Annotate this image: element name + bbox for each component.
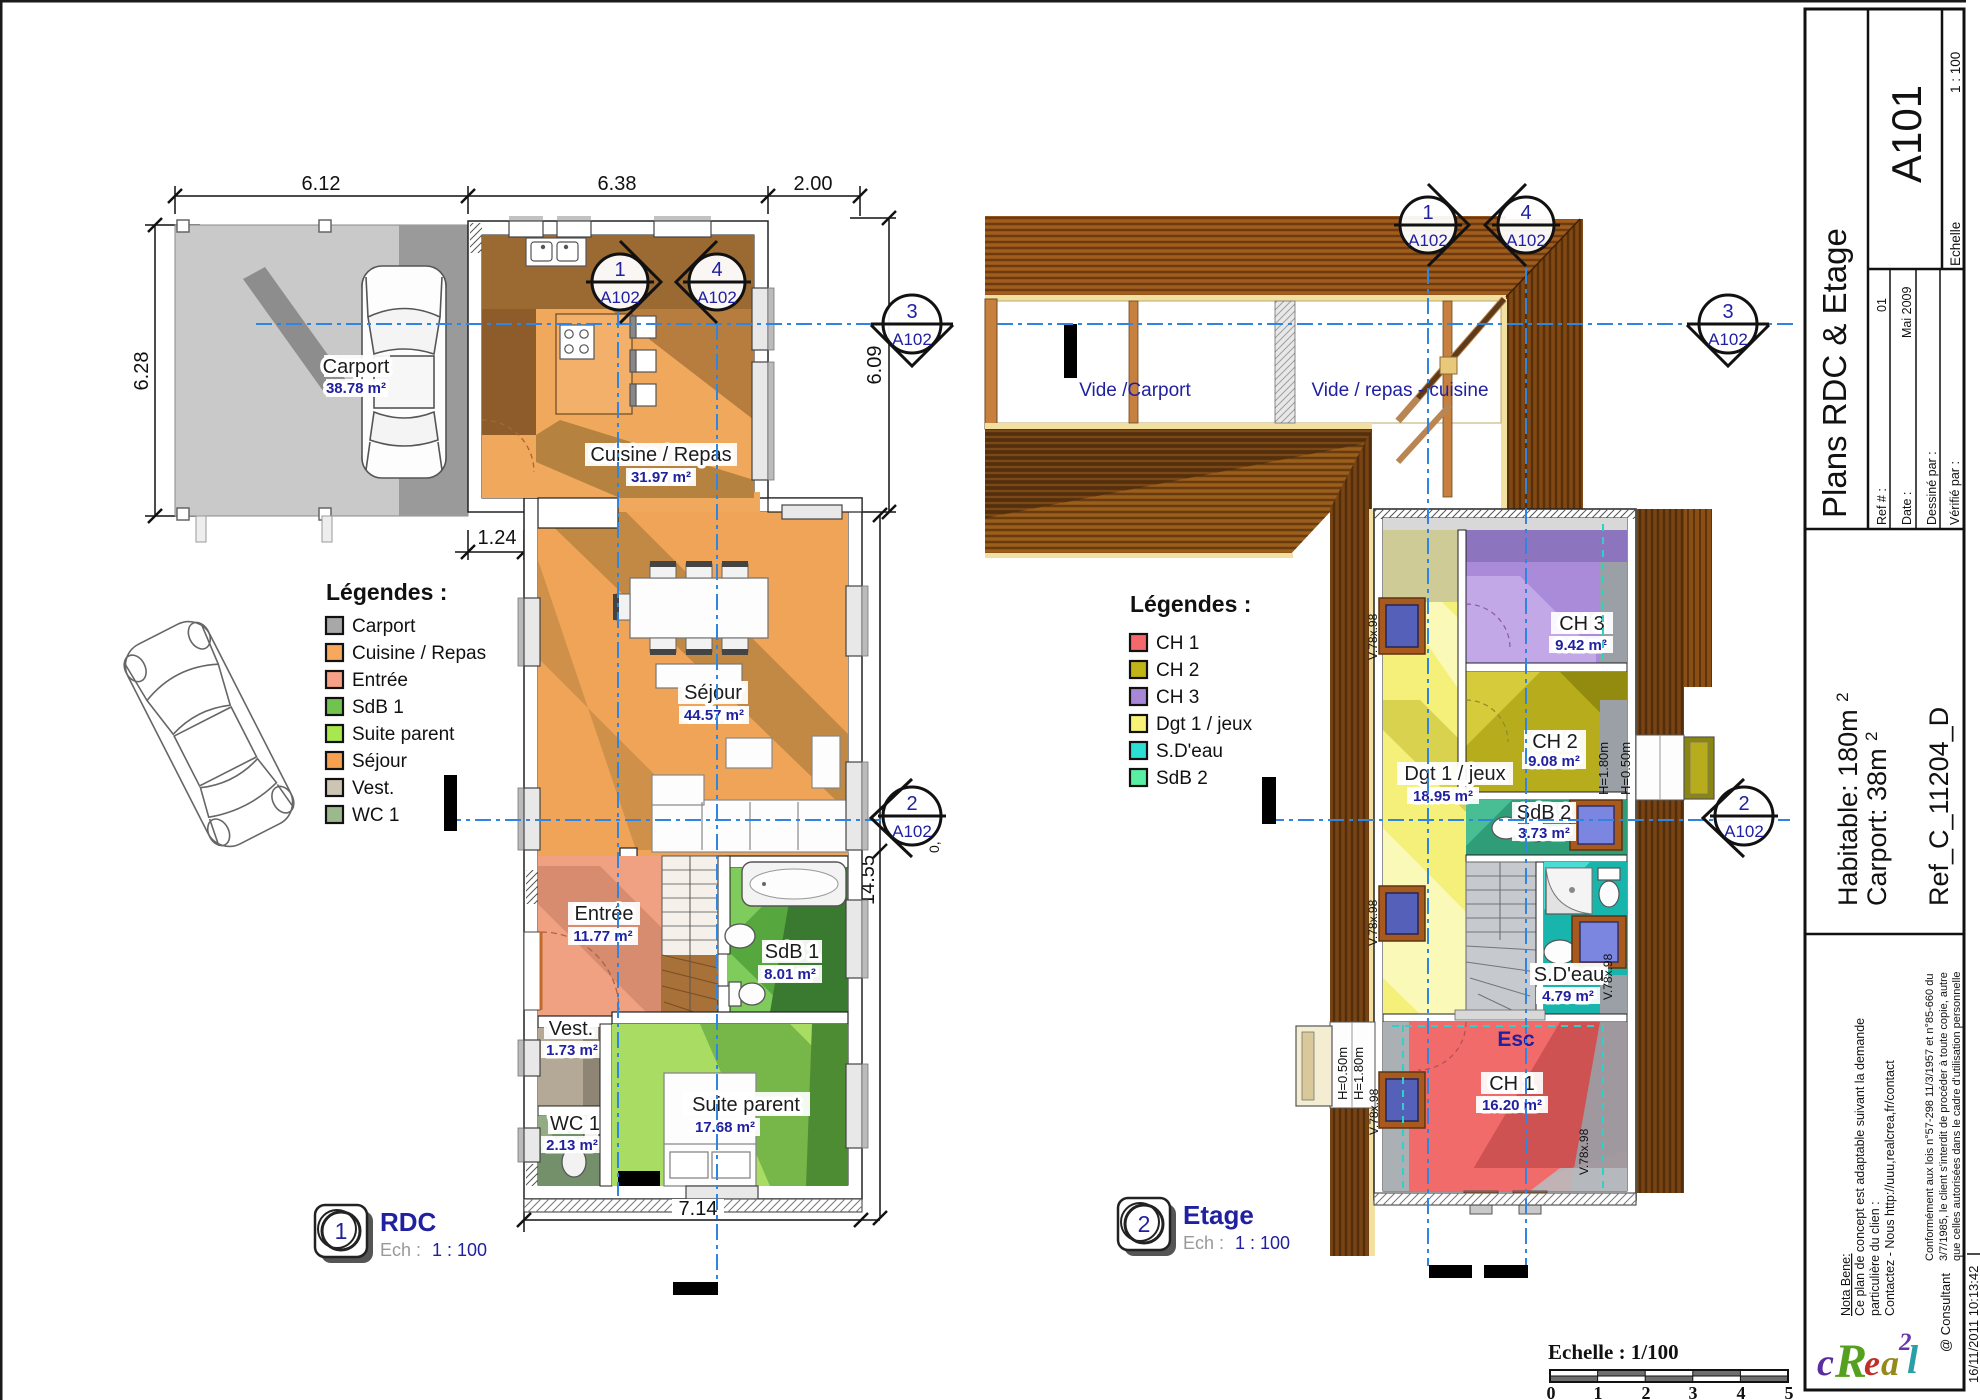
svg-text:CH 3: CH 3 [1156, 687, 1199, 708]
svg-text:Carport: Carport [323, 356, 390, 378]
svg-text:Plans RDC & Etage: Plans RDC & Etage [1816, 228, 1853, 518]
svg-text:Dessiné par :: Dessiné par : [1925, 451, 1939, 525]
svg-text:R: R [1834, 1335, 1867, 1388]
svg-text:Dgt 1 / jeux: Dgt 1 / jeux [1156, 714, 1253, 735]
svg-text:S.D'eau: S.D'eau [1156, 741, 1223, 762]
svg-text:16/11/2011 10:13:42: 16/11/2011 10:13:42 [1966, 1266, 1980, 1383]
svg-text:Date :: Date : [1900, 492, 1914, 525]
svg-text:1: 1 [335, 1218, 348, 1244]
svg-text:Légendes :: Légendes : [1130, 591, 1251, 617]
svg-text:2: 2 [906, 793, 917, 815]
svg-text:3: 3 [1689, 1383, 1698, 1400]
svg-text:Séjour: Séjour [684, 682, 742, 704]
svg-text:3: 3 [906, 301, 917, 323]
svg-text:WC 1: WC 1 [352, 805, 400, 826]
svg-text:3/7/1985, le client s'interdit: 3/7/1985, le client s'interdit de procéd… [1938, 972, 1950, 1261]
svg-text:Echelle: Echelle [1948, 222, 1963, 266]
svg-text:c: c [1817, 1342, 1834, 1384]
svg-text:A102: A102 [1708, 330, 1748, 349]
svg-text:Ech :: Ech : [380, 1240, 421, 1260]
svg-text:1: 1 [614, 259, 625, 281]
svg-text:S.D'eau: S.D'eau [1534, 964, 1605, 986]
svg-text:H=0.50m: H=0.50m [1335, 1047, 1350, 1100]
svg-text:Cuisine / Repas: Cuisine / Repas [352, 643, 486, 664]
svg-text:V.78x.98: V.78x.98 [1601, 953, 1615, 1000]
svg-text:0,: 0, [926, 841, 942, 853]
svg-text:5: 5 [1785, 1383, 1794, 1400]
svg-text:4.79 m²: 4.79 m² [1542, 988, 1594, 1005]
svg-text:que celles autorisées dans le: que celles autorisées dans le cadre d'ut… [1951, 971, 1963, 1261]
svg-text:1: 1 [1422, 202, 1433, 224]
svg-text:17.68 m²: 17.68 m² [695, 1119, 755, 1136]
svg-text:16.20 m²: 16.20 m² [1482, 1097, 1542, 1114]
svg-text:Entrée: Entrée [575, 903, 634, 925]
svg-text:Carport: 38m 2: Carport: 38m 2 [1862, 731, 1892, 906]
svg-text:31.97 m²: 31.97 m² [631, 469, 691, 486]
svg-text:CH 2: CH 2 [1532, 731, 1578, 753]
svg-text:A102: A102 [1724, 822, 1764, 841]
svg-text:WC 1: WC 1 [550, 1113, 600, 1135]
svg-text:CH 3: CH 3 [1559, 613, 1605, 635]
svg-text:H=0.50m: H=0.50m [1618, 742, 1633, 795]
svg-text:9.08 m²: 9.08 m² [1528, 753, 1580, 770]
svg-text:A102: A102 [600, 288, 640, 307]
svg-text:Vide / repas - cuisine: Vide / repas - cuisine [1311, 380, 1488, 401]
svg-text:V.78x.98: V.78x.98 [1366, 899, 1380, 946]
svg-text:Vérifié par :: Vérifié par : [1948, 461, 1962, 525]
svg-text:Suite parent: Suite parent [692, 1094, 800, 1116]
svg-text:8.01 m²: 8.01 m² [764, 966, 816, 983]
svg-text:Vide /Carport: Vide /Carport [1079, 380, 1191, 401]
svg-text:Ref # :: Ref # : [1875, 488, 1889, 525]
svg-text:1 : 100: 1 : 100 [1948, 52, 1963, 93]
svg-text:01: 01 [1875, 298, 1889, 312]
svg-text:V.78x.98: V.78x.98 [1577, 1128, 1591, 1175]
svg-text:2: 2 [1642, 1383, 1651, 1400]
svg-text:A102: A102 [892, 330, 932, 349]
svg-text:18.95 m²: 18.95 m² [1413, 788, 1473, 805]
svg-text:SdB 1: SdB 1 [352, 697, 404, 718]
svg-text:A102: A102 [697, 288, 737, 307]
svg-text:A102: A102 [1408, 231, 1448, 250]
svg-text:particulière du clien :: particulière du clien : [1868, 1201, 1882, 1316]
svg-text:CH 2: CH 2 [1156, 660, 1199, 681]
svg-text:6.38: 6.38 [598, 173, 637, 195]
svg-text:2: 2 [1138, 1211, 1151, 1237]
svg-text:2.00: 2.00 [794, 173, 833, 195]
svg-text:Echelle : 1/100: Echelle : 1/100 [1548, 1340, 1679, 1364]
svg-text:Ech :: Ech : [1183, 1233, 1224, 1253]
svg-text:Ref_C_11204_D: Ref_C_11204_D [1924, 707, 1954, 906]
svg-text:Esc: Esc [1497, 1028, 1535, 1051]
svg-text:11.77 m²: 11.77 m² [573, 928, 632, 945]
svg-text:A102: A102 [1506, 231, 1546, 250]
svg-text:RDC: RDC [380, 1207, 437, 1237]
svg-text:l: l [1907, 1337, 1919, 1382]
svg-text:CH 1: CH 1 [1156, 633, 1199, 654]
svg-text:2.13 m²: 2.13 m² [546, 1137, 598, 1154]
svg-text:Suite parent: Suite parent [352, 724, 455, 745]
svg-text:e: e [1864, 1343, 1880, 1383]
svg-text:Ce plan de concept est adaptab: Ce plan de concept est adaptable suivant… [1853, 1018, 1867, 1316]
svg-text:6.28: 6.28 [131, 352, 153, 391]
svg-text:H=1.80m: H=1.80m [1351, 1047, 1366, 1100]
svg-text:3: 3 [1722, 301, 1733, 323]
svg-text:1.73 m²: 1.73 m² [546, 1042, 598, 1059]
svg-text:Vest.: Vest. [352, 778, 394, 799]
svg-text:44.57 m²: 44.57 m² [684, 707, 744, 724]
svg-text:Légendes :: Légendes : [326, 579, 447, 605]
svg-text:2: 2 [1738, 793, 1749, 815]
svg-text:Etage: Etage [1183, 1200, 1254, 1230]
svg-text:H=1.80m: H=1.80m [1596, 742, 1611, 795]
svg-text:Mai 2009: Mai 2009 [1900, 287, 1914, 338]
svg-text:6.12: 6.12 [302, 173, 341, 195]
svg-text:Cuisine / Repas: Cuisine / Repas [590, 444, 731, 466]
svg-text:A102: A102 [892, 822, 932, 841]
svg-text:Habitable: 180m 2: Habitable: 180m 2 [1833, 692, 1863, 906]
svg-text:Contactez - Nous http://uuu,re: Contactez - Nous http://uuu,realcrea,fr/… [1883, 1060, 1897, 1316]
svg-text:9.42 m²: 9.42 m² [1555, 637, 1607, 654]
svg-text:1: 1 [1594, 1383, 1603, 1400]
svg-text:Séjour: Séjour [352, 751, 408, 772]
svg-text:0: 0 [1547, 1383, 1556, 1400]
svg-text:Nota Bene:: Nota Bene: [1839, 1253, 1853, 1316]
svg-text:1 : 100: 1 : 100 [1235, 1233, 1290, 1253]
svg-text:Dgt 1 / jeux: Dgt 1 / jeux [1404, 763, 1505, 785]
svg-text:1.24: 1.24 [478, 527, 517, 549]
svg-text:Vest.: Vest. [549, 1018, 593, 1040]
svg-text:Entrée: Entrée [352, 670, 408, 691]
svg-text:4: 4 [711, 259, 722, 281]
svg-text:Conformément aux lois n°57-298: Conformément aux lois n°57-298 11/3/1957… [1924, 974, 1936, 1261]
svg-text:A101: A101 [1883, 85, 1930, 183]
svg-text:a: a [1881, 1343, 1899, 1383]
svg-text:7.14: 7.14 [679, 1198, 718, 1220]
svg-text:4: 4 [1737, 1383, 1746, 1400]
svg-text:V.78x.98: V.78x.98 [1366, 613, 1380, 660]
svg-text:@ Consultant: @ Consultant [1938, 1273, 1953, 1352]
svg-text:Carport: Carport [352, 616, 416, 637]
svg-text:1 : 100: 1 : 100 [432, 1240, 487, 1260]
svg-text:6.09: 6.09 [864, 346, 886, 385]
svg-text:SdB 2: SdB 2 [1156, 768, 1208, 789]
svg-text:V.78x.98: V.78x.98 [1367, 1088, 1381, 1135]
svg-text:SdB 1: SdB 1 [765, 941, 819, 963]
svg-text:38.78 m²: 38.78 m² [326, 380, 386, 397]
svg-text:4: 4 [1520, 202, 1531, 224]
svg-text:CH 1: CH 1 [1489, 1073, 1535, 1095]
